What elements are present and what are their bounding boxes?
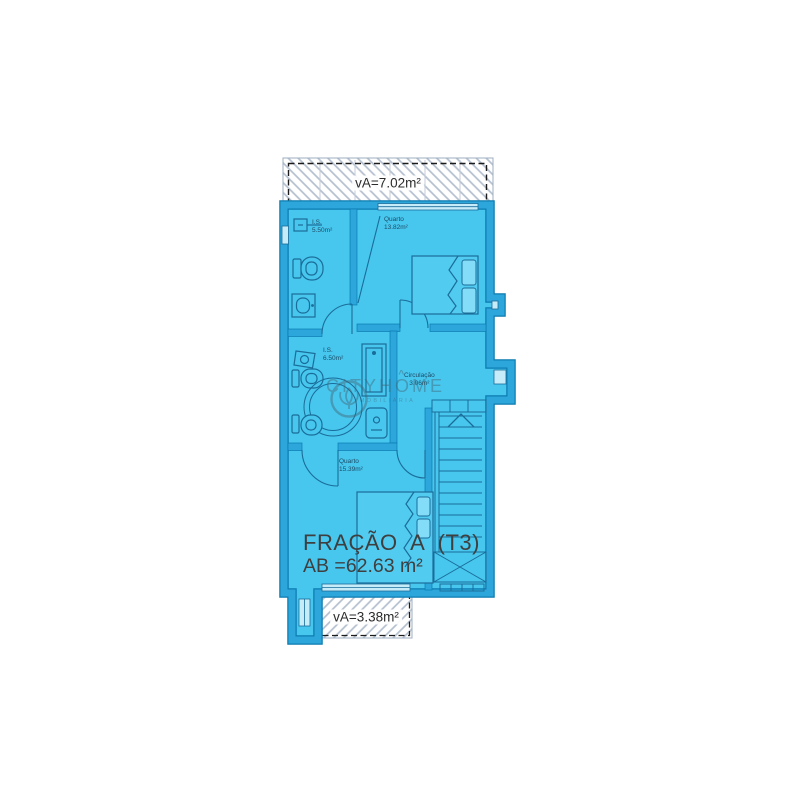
- balcony-top-label: vA=7.02m²: [352, 176, 424, 191]
- room-label-is1: I.S. 5.50m²: [312, 219, 332, 235]
- bidet-icon: [292, 415, 322, 435]
- pillow: [462, 260, 476, 285]
- window-stub: [299, 599, 310, 626]
- window-right-bump: [494, 370, 506, 384]
- wall-bedroom2-top-a: [288, 443, 302, 451]
- window-top: [378, 204, 478, 211]
- brand-o-accent: ^: [398, 369, 407, 380]
- window-left-bath: [282, 226, 289, 244]
- wall-bath1-bottom: [288, 329, 322, 337]
- pillow: [417, 497, 430, 516]
- washbasin-icon: [294, 351, 315, 368]
- pillow: [462, 288, 476, 313]
- toilet-icon: [293, 257, 323, 280]
- floor-plan-page: I.S. 5.50m² Quarto 13.82m² I.S. 6.50m² C…: [0, 0, 800, 800]
- room-name: Quarto: [384, 216, 408, 224]
- wall-bedroom1-bottom-a: [357, 324, 400, 332]
- room-label-quarto1: Quarto 13.82m²: [384, 216, 408, 232]
- fraction-title: FRAÇÃO A (T3): [303, 530, 480, 556]
- wall-bedroom2-top-b: [338, 443, 397, 451]
- gross-area-label: AB =62.63 m²: [303, 555, 423, 578]
- room-area: 13.82m²: [384, 224, 408, 232]
- room-label-quarto2: Quarto 15.39m²: [339, 458, 363, 474]
- brand-o: ^O: [395, 376, 412, 397]
- wall-bedroom1-divider: [350, 209, 357, 305]
- room-name: Quarto: [339, 458, 363, 466]
- watermark: CITYH^OME IMOBILIÁRIA: [326, 376, 445, 404]
- bed-bedroom1: [412, 256, 478, 314]
- room-area: 15.39m²: [339, 466, 363, 474]
- window-right-step: [492, 301, 498, 309]
- window-bottom: [322, 584, 410, 591]
- room-name: I.S.: [323, 347, 343, 355]
- brand-part: ME: [412, 376, 445, 396]
- room-name: I.S.: [312, 219, 332, 227]
- room-area: 5.50m²: [312, 227, 332, 235]
- cityhome-logo-icon: [326, 376, 372, 422]
- washbasin-icon: [292, 294, 315, 317]
- balcony-bottom-label: vA=3.38m²: [330, 610, 402, 625]
- wall-bedroom1-bottom-b: [430, 324, 486, 332]
- room-area: 6.50m²: [323, 355, 343, 363]
- toilet-icon: [292, 369, 323, 388]
- room-label-is2: I.S. 6.50m²: [323, 347, 343, 363]
